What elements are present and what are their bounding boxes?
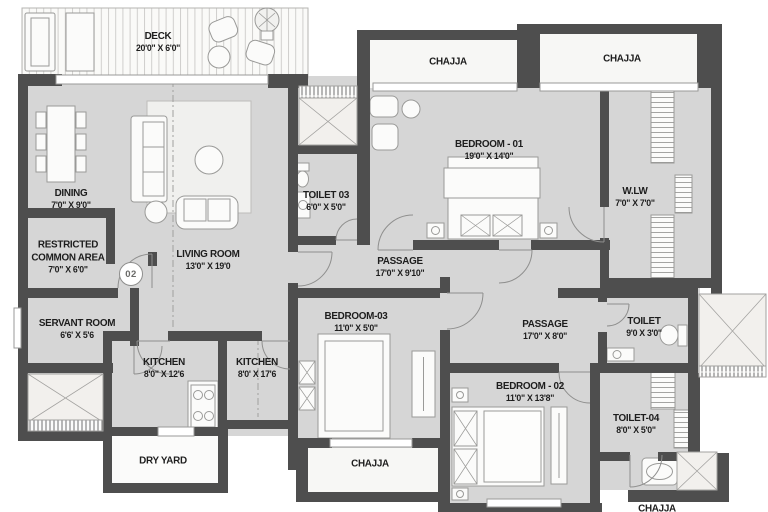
room-label-kitchen-2: KITCHEN 8'0' X 17'6 (236, 356, 278, 380)
window-bedroom03 (330, 439, 412, 447)
room-label-chajja-bottom-right: CHAJJA (638, 503, 676, 512)
shaft-left-icon (28, 374, 103, 431)
room-label-restricted-common-area: RESTRICTED COMMON AREA 7'0" X 6'0" (26, 239, 111, 276)
room-label-dry-yard: DRY YARD (139, 455, 187, 468)
room-label-dining: DINING 7'0" X 9'0" (51, 187, 90, 211)
bathtub-icon (642, 458, 677, 485)
window-chajja-wlw (540, 83, 698, 91)
window-servant (14, 308, 21, 348)
window-chajja-bedroom01 (373, 83, 517, 91)
room-label-toilet: TOILET 9'0 X 3'0" (626, 315, 662, 339)
shaft-top-mid-icon (299, 86, 357, 145)
floor-plan: DECK 20'0" X 6'0" CHAJJA CHAJJA DINING 7… (0, 0, 768, 512)
kitchen-stove-icon (188, 381, 218, 431)
dining-table-icon (36, 106, 86, 182)
window-deck (56, 75, 268, 84)
room-label-passage-2: PASSAGE 17'0" X 8'0" (522, 318, 568, 342)
room-label-servant-room: SERVANT ROOM 6'6' X 5'6 (39, 317, 115, 341)
room-label-wlw: W.LW 7'0" X 7'0" (615, 185, 654, 209)
room-label-chajja-top-right: CHAJJA (603, 53, 641, 66)
shaft-bottom-right-icon (677, 452, 717, 490)
room-label-living-room: LIVING ROOM 13'0" X 19'0 (176, 248, 239, 272)
shaft-right-icon (699, 294, 766, 377)
room-label-deck: DECK 20'0" X 6'0" (136, 30, 180, 54)
unit-number-badge: 02 (119, 262, 143, 286)
window-dry-yard (158, 427, 194, 436)
room-label-chajja-bottom-mid: CHAJJA (351, 458, 389, 471)
living-room-furniture-icon (131, 101, 251, 229)
room-label-bedroom-01: BEDROOM - 01 19'0" X 14'0" (455, 138, 523, 162)
room-label-bedroom-03: BEDROOM-03 11'0" X 5'0" (325, 310, 388, 334)
room-label-chajja-top-mid: CHAJJA (429, 56, 467, 69)
room-label-toilet-03: TOILET 03 6'0" X 5'0" (303, 189, 349, 213)
room-label-passage-1: PASSAGE 17'0" X 9'10" (376, 255, 425, 279)
room-label-kitchen-1: KITCHEN 8'0" X 12'6 (143, 356, 185, 380)
room-label-bedroom-02: BEDROOM - 02 11'0" X 13'8" (496, 380, 564, 404)
window-bedroom02 (487, 499, 561, 507)
room-label-toilet-04: TOILET-04 8'0" X 5'0" (613, 412, 659, 436)
